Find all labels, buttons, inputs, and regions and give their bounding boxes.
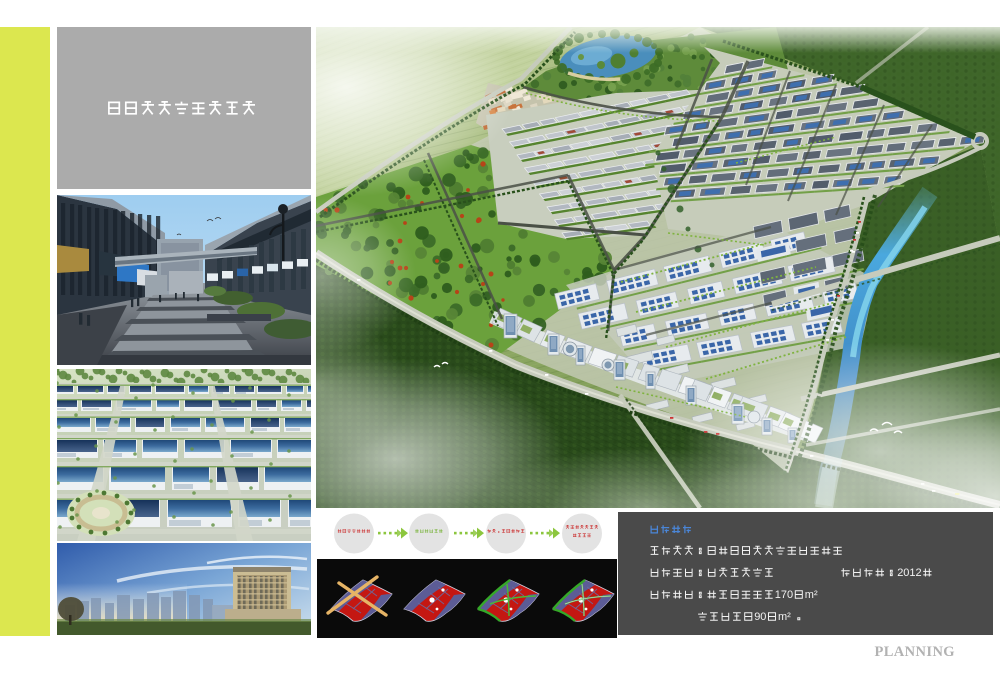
svg-text:90: 90 — [754, 611, 766, 623]
svg-text:2012: 2012 — [897, 567, 921, 579]
svg-text:170: 170 — [775, 589, 793, 601]
svg-text:m²: m² — [805, 589, 818, 601]
svg-text:m²: m² — [778, 611, 791, 623]
